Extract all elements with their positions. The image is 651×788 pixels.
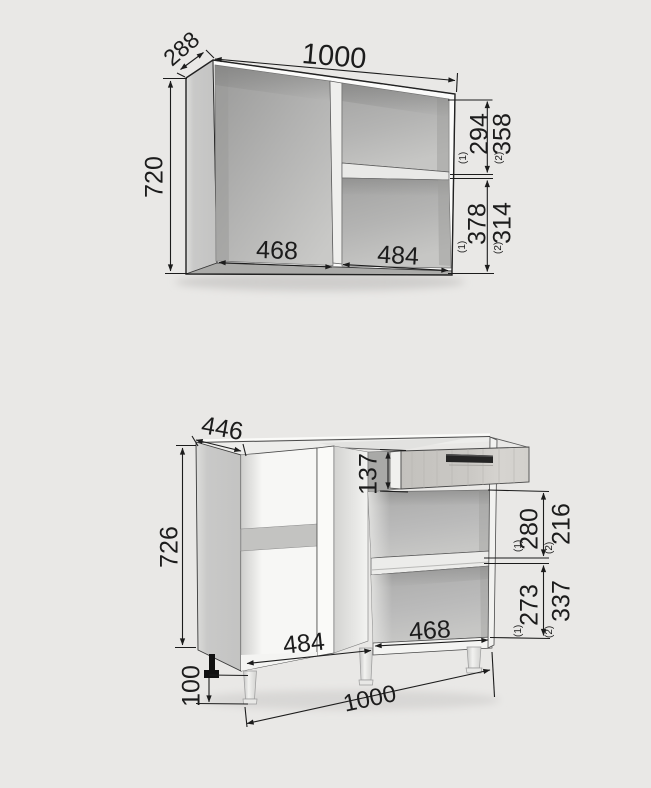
svg-text:(1): (1) [457, 241, 468, 253]
svg-text:720: 720 [141, 156, 169, 198]
svg-text:1000: 1000 [301, 38, 368, 76]
svg-text:(2): (2) [493, 242, 504, 254]
svg-text:(1): (1) [458, 152, 469, 164]
svg-text:273: 273 [516, 584, 544, 626]
svg-text:216: 216 [548, 503, 576, 545]
svg-text:(2): (2) [544, 542, 555, 554]
svg-text:137: 137 [355, 453, 383, 495]
svg-text:468: 468 [256, 236, 299, 265]
svg-text:(1): (1) [513, 540, 524, 552]
svg-text:358: 358 [489, 113, 517, 155]
svg-text:378: 378 [464, 203, 492, 245]
svg-text:(1): (1) [513, 625, 524, 637]
svg-text:100: 100 [178, 665, 206, 707]
svg-text:726: 726 [156, 526, 184, 568]
svg-text:484: 484 [282, 628, 327, 660]
svg-text:468: 468 [408, 615, 452, 646]
svg-text:314: 314 [489, 202, 517, 244]
svg-text:484: 484 [377, 241, 420, 271]
svg-text:(2): (2) [544, 626, 555, 638]
svg-text:337: 337 [548, 580, 576, 622]
svg-text:(2): (2) [494, 152, 505, 164]
